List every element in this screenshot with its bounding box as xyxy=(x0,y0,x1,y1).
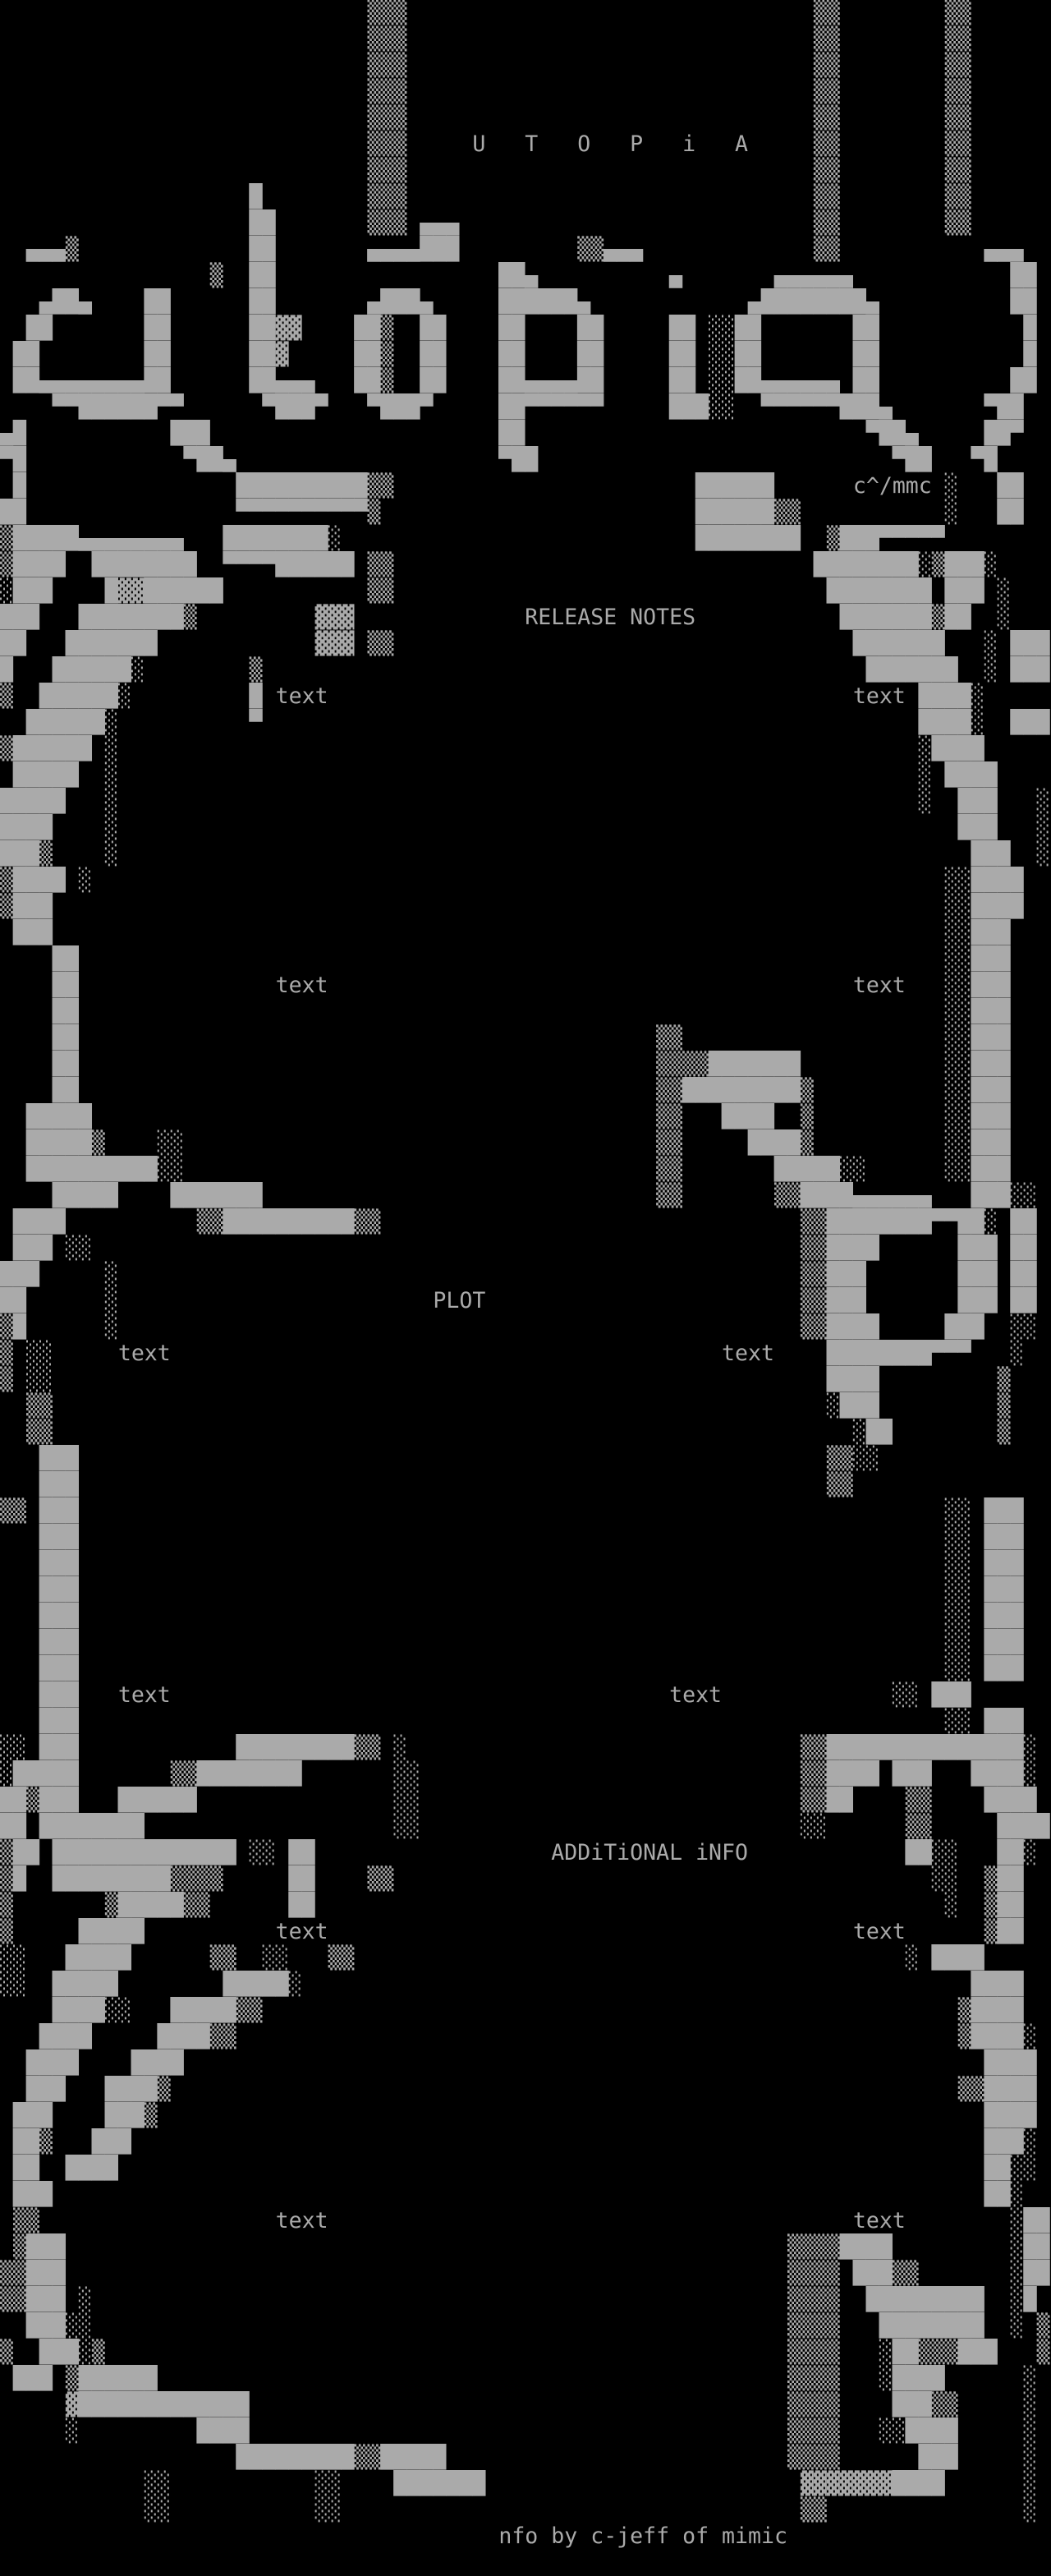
nfo-viewer: ▒▒▒ ▒▒ ▒▒ ▒▒▒ ▒▒ ▒▒ ▒▒▒ ▒▒ ▒▒ xyxy=(0,0,1051,2576)
nfo-ascii-art: ▒▒▒ ▒▒ ▒▒ ▒▒▒ ▒▒ ▒▒ ▒▒▒ ▒▒ ▒▒ xyxy=(0,0,1050,2550)
